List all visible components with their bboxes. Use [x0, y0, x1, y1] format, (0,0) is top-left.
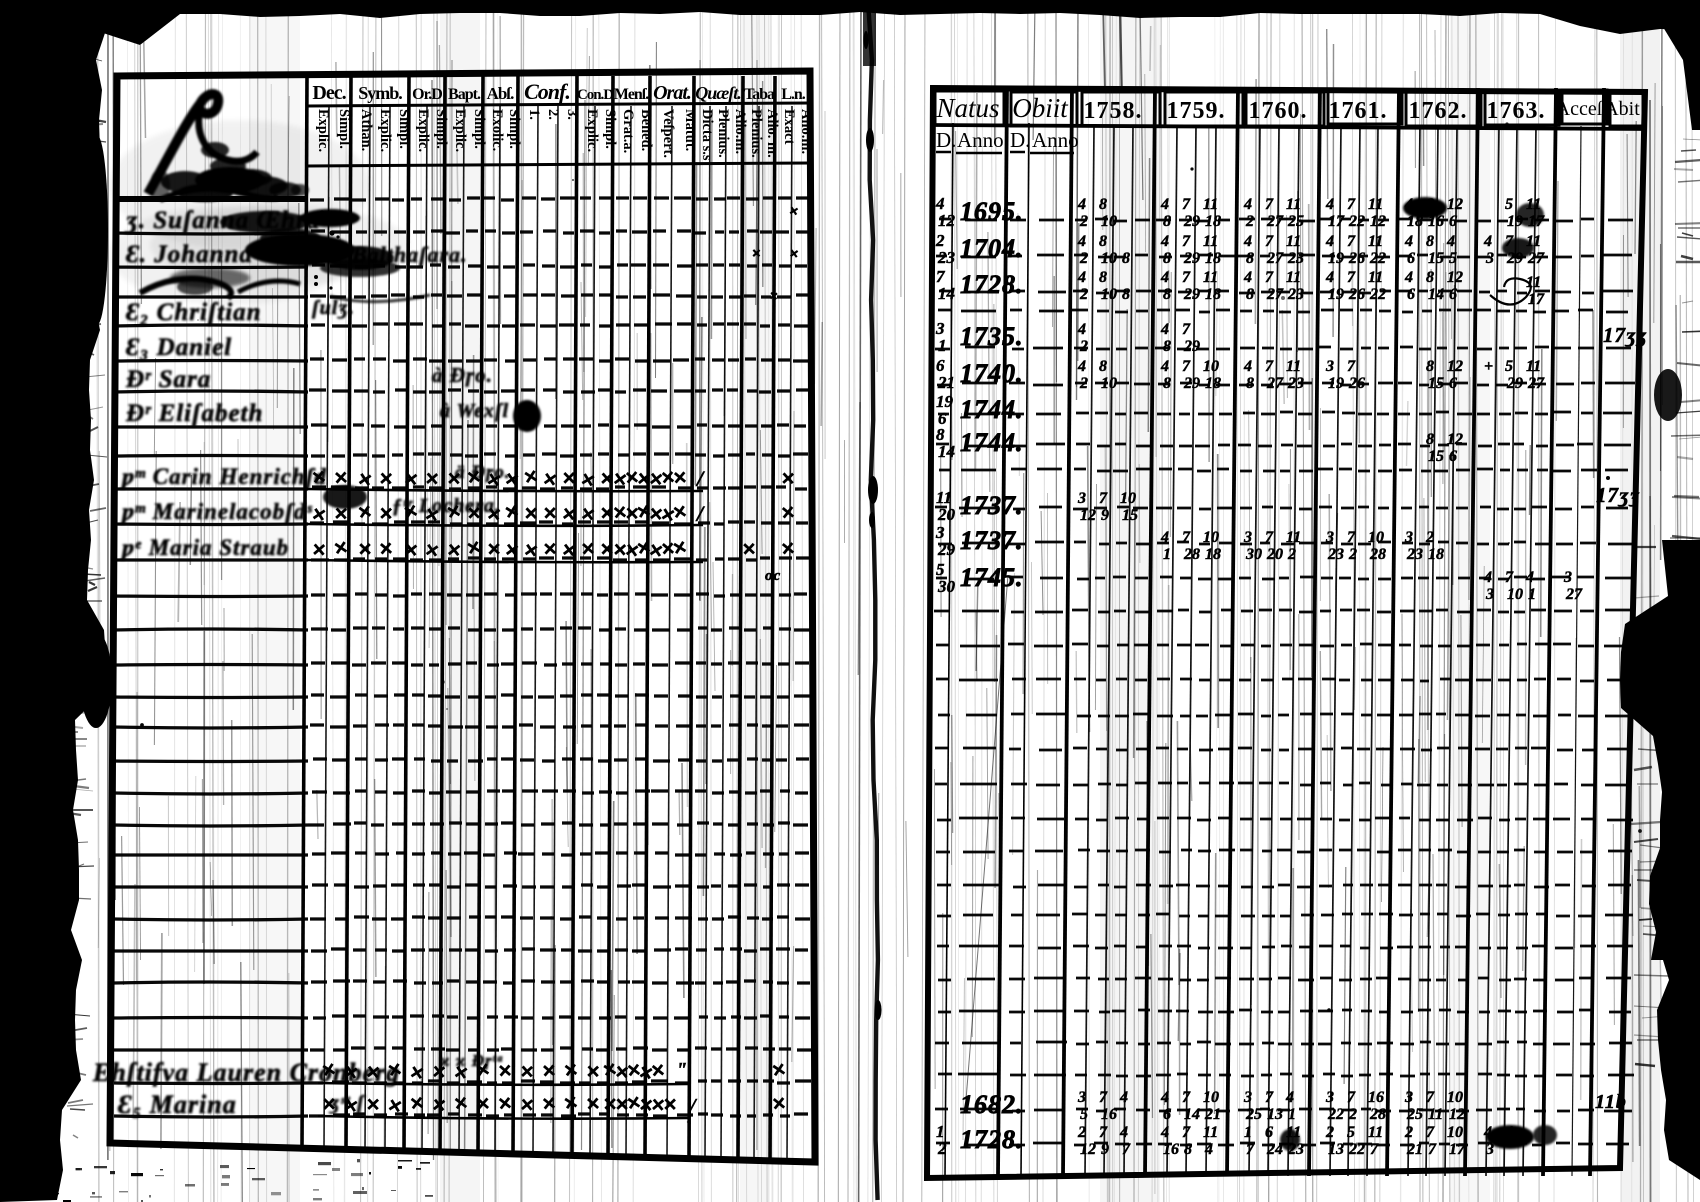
svg-text:7: 7	[1246, 1141, 1255, 1158]
svg-text:2: 2	[1079, 250, 1088, 267]
svg-text:17ʒʒ: 17ʒʒ	[1596, 483, 1641, 507]
svg-text:18: 18	[1205, 375, 1221, 392]
svg-text:Conf.: Conf.	[524, 79, 570, 104]
svg-text:": "	[676, 1059, 688, 1081]
svg-text:4: 4	[1119, 1089, 1128, 1106]
svg-text:×: ×	[403, 537, 419, 564]
svg-text:Dicta s.s: Dicta s.s	[699, 109, 715, 161]
svg-text:25: 25	[1287, 213, 1304, 230]
svg-text:Symb.: Symb.	[358, 83, 402, 103]
svg-text:8: 8	[1163, 213, 1171, 230]
svg-text:×: ×	[543, 501, 557, 527]
svg-text:23: 23	[1287, 375, 1304, 392]
svg-text:2.: 2.	[545, 109, 561, 120]
svg-text:7: 7	[1182, 321, 1191, 338]
svg-text:11: 11	[1428, 1106, 1443, 1123]
svg-text:Athan.: Athan.	[358, 109, 374, 151]
svg-text:ƿᵉ Maria Straub: ƿᵉ Maria Straub	[120, 535, 289, 560]
svg-text:×: ×	[580, 536, 595, 563]
svg-text:Plenius.: Plenius.	[715, 109, 731, 158]
svg-text:12: 12	[1080, 507, 1096, 524]
svg-text:27: 27	[1527, 375, 1545, 392]
svg-text:4: 4	[1077, 233, 1086, 250]
svg-text:1737.: 1737.	[960, 526, 1024, 555]
svg-text:12: 12	[1449, 1106, 1465, 1123]
svg-text:×: ×	[311, 537, 326, 564]
svg-text:3: 3	[1077, 490, 1086, 507]
svg-text:Obiit: Obiit	[1012, 93, 1069, 123]
svg-text:Bapt.: Bapt.	[448, 86, 481, 103]
svg-text:×: ×	[379, 501, 394, 527]
svg-text:×: ×	[519, 1092, 535, 1119]
svg-text:ſulʒ.: ſulʒ.	[312, 297, 355, 319]
svg-text:1735.: 1735.	[960, 322, 1024, 351]
svg-text:10: 10	[1120, 490, 1136, 507]
svg-text:×: ×	[585, 1091, 600, 1118]
svg-text:27: 27	[1266, 250, 1284, 267]
svg-text:4: 4	[1160, 529, 1169, 546]
svg-text:4: 4	[1325, 196, 1334, 213]
svg-text:Ɛ₃ Daniel: Ɛ₃ Daniel	[126, 334, 232, 361]
svg-text:4: 4	[1483, 569, 1492, 586]
svg-text:ƿᵐ Carin Henrichſd: ƿᵐ Carin Henrichſd	[120, 464, 327, 489]
svg-text:1: 1	[1163, 546, 1171, 563]
svg-text:21: 21	[1406, 1141, 1423, 1158]
svg-text:Ɛ₂ Chriſtian: Ɛ₂ Chriſtian	[126, 299, 262, 326]
svg-text:Dec.: Dec.	[312, 82, 346, 104]
svg-text:×: ×	[333, 501, 348, 528]
svg-text:D.: D.	[1010, 128, 1030, 152]
svg-text:×: ×	[780, 500, 796, 527]
svg-text:7: 7	[1099, 1089, 1108, 1106]
svg-text:2: 2	[1079, 286, 1088, 303]
svg-text:3: 3	[1485, 586, 1494, 603]
svg-text:11: 11	[1203, 196, 1218, 213]
svg-text:ϰ ϰ Ɖɼᵗᵃ: ϰ ϰ Ɖɼᵗᵃ	[440, 1051, 503, 1070]
svg-text:Simpl.: Simpl.	[506, 109, 522, 149]
svg-text:1: 1	[1528, 586, 1536, 603]
svg-text:14: 14	[938, 284, 955, 303]
svg-text:22: 22	[1348, 1141, 1365, 1158]
svg-text:27: 27	[1266, 375, 1284, 392]
svg-text:8: 8	[1122, 250, 1130, 267]
svg-text:4: 4	[1077, 321, 1086, 338]
svg-text:10: 10	[1101, 213, 1117, 230]
svg-text:8: 8	[1163, 286, 1171, 303]
svg-text:24: 24	[1266, 1141, 1283, 1158]
svg-text:7: 7	[1347, 196, 1356, 213]
svg-text:4: 4	[1160, 1089, 1169, 1106]
svg-text:2: 2	[1348, 546, 1357, 563]
svg-text:Taba: Taba	[744, 86, 775, 103]
svg-text:/: /	[695, 466, 705, 491]
svg-text:13: 13	[1267, 1106, 1283, 1123]
svg-text:30: 30	[1245, 546, 1262, 563]
svg-text:4: 4	[1325, 269, 1334, 286]
svg-text:17ʒʒ: 17ʒʒ	[1603, 323, 1648, 347]
svg-text:×: ×	[378, 536, 394, 563]
svg-text:D.: D.	[936, 128, 956, 152]
svg-text:5: 5	[1080, 1106, 1088, 1123]
svg-text:10: 10	[1507, 586, 1523, 603]
svg-text:15: 15	[1428, 250, 1444, 267]
svg-text:×: ×	[378, 466, 393, 493]
svg-text:1761.: 1761.	[1329, 98, 1388, 124]
svg-text:7: 7	[1099, 1124, 1108, 1141]
svg-text:29: 29	[1183, 338, 1200, 355]
svg-text:7: 7	[1347, 529, 1356, 546]
svg-text:23: 23	[1287, 250, 1304, 267]
svg-text:1759.: 1759.	[1167, 98, 1226, 124]
svg-text:/: /	[695, 501, 705, 526]
svg-text:L.n.: L.n.	[781, 86, 806, 103]
svg-text:4: 4	[1483, 233, 1492, 250]
svg-text:3: 3	[1325, 529, 1334, 546]
svg-text:Simpl.: Simpl.	[396, 109, 412, 149]
svg-text:3: 3	[1325, 1089, 1334, 1106]
svg-text:29: 29	[1506, 375, 1523, 392]
svg-text:18: 18	[1205, 213, 1221, 230]
svg-text:16: 16	[1368, 1089, 1384, 1106]
svg-text:3: 3	[1404, 529, 1413, 546]
svg-text:26: 26	[1348, 375, 1365, 392]
svg-text:1.: 1.	[526, 109, 542, 120]
svg-text:4: 4	[1160, 358, 1169, 375]
svg-text:7: 7	[1182, 358, 1191, 375]
svg-text:4: 4	[1204, 1141, 1213, 1158]
svg-text:×: ×	[487, 537, 501, 563]
svg-text:29: 29	[1183, 375, 1200, 392]
svg-text:27: 27	[1266, 213, 1284, 230]
svg-text:×: ×	[524, 501, 538, 527]
svg-text:14: 14	[938, 442, 955, 461]
svg-text:29: 29	[1183, 286, 1200, 303]
svg-text:×: ×	[424, 466, 439, 493]
svg-text:Or.D: Or.D	[412, 86, 442, 103]
svg-text:1695.: 1695.	[960, 197, 1024, 226]
svg-text:7: 7	[1347, 1089, 1356, 1106]
svg-text:4: 4	[1077, 269, 1086, 286]
svg-text:6: 6	[1449, 448, 1457, 465]
svg-text:1763.: 1763.	[1487, 98, 1546, 124]
svg-text:11: 11	[1203, 1124, 1218, 1141]
svg-text:15: 15	[1428, 375, 1444, 392]
svg-text:8: 8	[1246, 375, 1254, 392]
svg-text:5: 5	[1505, 358, 1513, 375]
svg-text:×: ×	[780, 536, 796, 563]
svg-text:25: 25	[1406, 1106, 1423, 1123]
svg-text:23: 23	[937, 248, 956, 267]
svg-text:2: 2	[1079, 375, 1088, 392]
svg-text:8: 8	[1163, 375, 1171, 392]
svg-text:21: 21	[1204, 1106, 1221, 1123]
svg-text:oc: oc	[765, 568, 781, 584]
svg-text:6: 6	[1265, 1124, 1273, 1141]
svg-text:18: 18	[1428, 546, 1444, 563]
svg-text:3: 3	[1243, 1089, 1252, 1106]
svg-text:11: 11	[1203, 233, 1218, 250]
svg-text:12: 12	[938, 211, 956, 230]
svg-text:19: 19	[1328, 250, 1344, 267]
svg-text:6: 6	[1449, 375, 1457, 392]
svg-text:7: 7	[1182, 233, 1191, 250]
svg-text:7: 7	[1122, 1141, 1131, 1158]
svg-text:1762.: 1762.	[1409, 98, 1468, 124]
svg-text:1737.: 1737.	[960, 491, 1024, 520]
svg-text:1744.: 1744.	[960, 428, 1024, 457]
svg-text:8: 8	[1122, 286, 1130, 303]
svg-text:7: 7	[1347, 233, 1356, 250]
svg-text:×: ×	[781, 466, 796, 492]
svg-text:6: 6	[1449, 286, 1457, 303]
svg-text:Menſ.: Menſ.	[614, 86, 650, 103]
svg-text:7: 7	[1182, 1124, 1191, 1141]
svg-text:6: 6	[1449, 213, 1457, 230]
svg-text:1744.: 1744.	[960, 395, 1024, 424]
svg-text:15: 15	[1428, 448, 1444, 465]
svg-text:12: 12	[1447, 269, 1463, 286]
svg-text:29: 29	[1183, 250, 1200, 267]
svg-text:8: 8	[1099, 269, 1107, 286]
svg-text:3: 3	[1077, 1089, 1086, 1106]
svg-text:8: 8	[1426, 269, 1434, 286]
svg-text:20: 20	[937, 505, 956, 524]
svg-text:4: 4	[1404, 269, 1413, 286]
svg-text:2: 2	[1325, 1124, 1334, 1141]
svg-text:Acceſ: Acceſ	[1556, 98, 1604, 120]
svg-text:8: 8	[1099, 196, 1107, 213]
svg-text:4: 4	[1160, 233, 1169, 250]
svg-text:1760.: 1760.	[1249, 98, 1308, 124]
svg-text:8: 8	[1246, 250, 1254, 267]
svg-text:3: 3	[1485, 250, 1494, 267]
svg-text:11: 11	[1368, 196, 1383, 213]
svg-text:×: ×	[322, 1092, 336, 1118]
svg-text:2: 2	[1245, 213, 1254, 230]
svg-text:4: 4	[1243, 233, 1252, 250]
svg-text:Alio.m.: Alio.m.	[732, 109, 748, 154]
svg-text:5: 5	[1505, 196, 1513, 213]
svg-text:×: ×	[446, 466, 461, 493]
svg-text:7: 7	[1426, 1089, 1435, 1106]
svg-text:Anno: Anno	[957, 128, 1004, 152]
svg-text:22: 22	[1369, 250, 1386, 267]
svg-text:17: 17	[1528, 291, 1545, 308]
svg-text:à Ɖɼo.: à Ɖɼo.	[432, 363, 493, 387]
svg-text:25: 25	[1245, 1106, 1262, 1123]
svg-text:10: 10	[1447, 1089, 1463, 1106]
svg-text:7: 7	[1370, 1141, 1379, 1158]
svg-text:×: ×	[475, 1091, 490, 1118]
svg-text:8: 8	[1099, 358, 1107, 375]
svg-text:11: 11	[1368, 269, 1383, 286]
svg-text:18: 18	[1205, 286, 1221, 303]
svg-text:4: 4	[1119, 1124, 1128, 1141]
svg-text:13: 13	[1328, 1141, 1344, 1158]
svg-text:×: ×	[562, 466, 576, 492]
svg-text:26: 26	[1348, 286, 1365, 303]
svg-text:4: 4	[1160, 321, 1169, 338]
svg-text:28: 28	[1369, 1106, 1386, 1123]
svg-text:+: +	[1484, 358, 1493, 375]
svg-text:7: 7	[1265, 1089, 1274, 1106]
svg-text:3.: 3.	[564, 109, 580, 120]
svg-text:1740.: 1740.	[960, 359, 1024, 388]
svg-text:×: ×	[366, 1092, 381, 1118]
svg-text:7: 7	[1182, 269, 1191, 286]
svg-text:7: 7	[1182, 529, 1191, 546]
svg-text:Grat.a.: Grat.a.	[620, 109, 636, 153]
svg-text:×: ×	[519, 1059, 534, 1086]
svg-text:11: 11	[1286, 358, 1301, 375]
svg-text:4: 4	[1243, 196, 1252, 213]
svg-text:Simpl.: Simpl.	[433, 109, 449, 149]
svg-text:11: 11	[1368, 1124, 1383, 1141]
svg-text:6: 6	[1407, 250, 1415, 267]
svg-text:×: ×	[771, 1091, 787, 1118]
svg-text:10: 10	[1203, 1089, 1219, 1106]
svg-text:1745.: 1745.	[960, 563, 1024, 592]
svg-text:11: 11	[1286, 529, 1301, 546]
svg-text:23: 23	[1327, 546, 1344, 563]
svg-text:7: 7	[1182, 1089, 1191, 1106]
svg-text:×: ×	[542, 536, 557, 563]
svg-text:6: 6	[1407, 286, 1415, 303]
svg-text:7: 7	[1265, 529, 1274, 546]
svg-text:Simpl.: Simpl.	[471, 109, 487, 149]
svg-text:3: 3	[1404, 1089, 1413, 1106]
svg-text:Alio. m.: Alio. m.	[764, 109, 780, 158]
svg-text:19: 19	[1328, 375, 1344, 392]
svg-text:×: ×	[333, 465, 348, 492]
svg-text:1: 1	[938, 336, 947, 355]
svg-text:17: 17	[1449, 1141, 1466, 1158]
svg-text:1682.: 1682.	[960, 1090, 1024, 1119]
svg-text:4: 4	[1243, 269, 1252, 286]
svg-text:Ɛ₅ Marina: Ɛ₅ Marina	[118, 1090, 237, 1119]
svg-text:22: 22	[1369, 286, 1386, 303]
svg-text:15: 15	[1122, 507, 1138, 524]
svg-text:Orat.: Orat.	[653, 82, 691, 104]
svg-text:5: 5	[1347, 1124, 1355, 1141]
svg-text:2: 2	[937, 1139, 947, 1158]
svg-text:28: 28	[1369, 546, 1386, 563]
svg-text:21: 21	[937, 373, 955, 392]
svg-text:Matut.: Matut.	[682, 109, 698, 151]
svg-text:11: 11	[1526, 358, 1541, 375]
svg-text:11: 11	[1286, 233, 1301, 250]
svg-text:18: 18	[1205, 250, 1221, 267]
svg-text:8: 8	[1099, 233, 1107, 250]
svg-text:Ɖʳ Eliſabeth: Ɖʳ Eliſabeth	[125, 400, 263, 427]
svg-text:8: 8	[1426, 431, 1434, 448]
svg-text:8: 8	[1426, 233, 1434, 250]
svg-text:3: 3	[1243, 529, 1252, 546]
svg-text:11: 11	[1368, 233, 1383, 250]
svg-text:Alio.m.: Alio.m.	[798, 109, 814, 154]
svg-text:×: ×	[358, 537, 372, 563]
svg-text:7: 7	[1347, 269, 1356, 286]
svg-text:Explic.: Explic.	[584, 109, 600, 152]
svg-text:7: 7	[1347, 358, 1356, 375]
svg-text:12: 12	[1370, 213, 1386, 230]
svg-text:7: 7	[1265, 196, 1274, 213]
svg-text:4: 4	[1077, 358, 1086, 375]
svg-text:8: 8	[1246, 286, 1254, 303]
svg-text:1: 1	[1288, 1106, 1296, 1123]
svg-text:Simpl.: Simpl.	[602, 109, 618, 149]
svg-text:Con.D: Con.D	[577, 87, 614, 103]
svg-text:12: 12	[1447, 358, 1463, 375]
svg-text:28: 28	[1183, 546, 1200, 563]
svg-text:10: 10	[1101, 375, 1117, 392]
svg-text:3: 3	[1325, 358, 1334, 375]
svg-text:4: 4	[1325, 233, 1334, 250]
svg-text:4: 4	[1446, 233, 1455, 250]
svg-text:2: 2	[1077, 1124, 1086, 1141]
svg-text:16: 16	[1163, 1141, 1179, 1158]
svg-text:17: 17	[1328, 213, 1345, 230]
svg-text:14: 14	[1428, 286, 1444, 303]
svg-text:7: 7	[1505, 569, 1514, 586]
svg-text:×: ×	[663, 1092, 677, 1118]
svg-text:27: 27	[1565, 586, 1583, 603]
svg-text:ƿᵐ Marinelacobſdˢ: ƿᵐ Marinelacobſdˢ	[120, 499, 313, 524]
svg-text:Quæſt.: Quæſt.	[695, 83, 741, 103]
svg-text:4: 4	[1160, 269, 1169, 286]
svg-text:19: 19	[1328, 286, 1344, 303]
svg-text:10: 10	[1101, 250, 1117, 267]
svg-text:1728.: 1728.	[960, 270, 1024, 299]
svg-text:10: 10	[1447, 1124, 1463, 1141]
svg-text:×: ×	[467, 501, 481, 527]
svg-text:×: ×	[752, 246, 761, 262]
svg-text:8: 8	[1426, 358, 1434, 375]
svg-text:27: 27	[1266, 286, 1284, 303]
svg-text:Abit: Abit	[1604, 98, 1640, 120]
svg-text:10: 10	[1101, 286, 1117, 303]
svg-text:à Wexſl: à Wexſl	[440, 400, 509, 422]
svg-text:8: 8	[1184, 1141, 1192, 1158]
svg-text:×: ×	[497, 1058, 512, 1085]
svg-text:Plenius.: Plenius.	[748, 109, 764, 158]
svg-text:×: ×	[586, 1059, 601, 1085]
svg-text:23: 23	[1287, 286, 1304, 303]
svg-text:Abſ.: Abſ.	[487, 84, 514, 103]
svg-text:16: 16	[1101, 1106, 1117, 1123]
svg-text:1758.: 1758.	[1084, 98, 1143, 124]
svg-text:1: 1	[1244, 1124, 1252, 1141]
svg-text:23: 23	[1406, 546, 1423, 563]
svg-text:×: ×	[541, 1058, 556, 1085]
svg-text:22: 22	[1327, 1106, 1344, 1123]
svg-text:7: 7	[1099, 490, 1108, 507]
svg-text:2: 2	[1404, 1124, 1413, 1141]
svg-text:12: 12	[1447, 431, 1463, 448]
svg-text:11: 11	[1286, 269, 1301, 286]
svg-text:7: 7	[1265, 233, 1274, 250]
svg-text:Exact: Exact	[781, 109, 797, 145]
svg-text:1728.: 1728.	[960, 1125, 1024, 1154]
svg-text:1704.: 1704.	[960, 234, 1024, 263]
svg-text:2: 2	[1287, 546, 1296, 563]
svg-text:7: 7	[1265, 358, 1274, 375]
svg-text:Exolic.: Exolic.	[489, 109, 505, 151]
svg-text:10: 10	[1368, 529, 1384, 546]
svg-text:29: 29	[937, 540, 956, 559]
svg-text:Explic.: Explic.	[415, 109, 431, 152]
svg-text:Natus: Natus	[935, 93, 999, 123]
